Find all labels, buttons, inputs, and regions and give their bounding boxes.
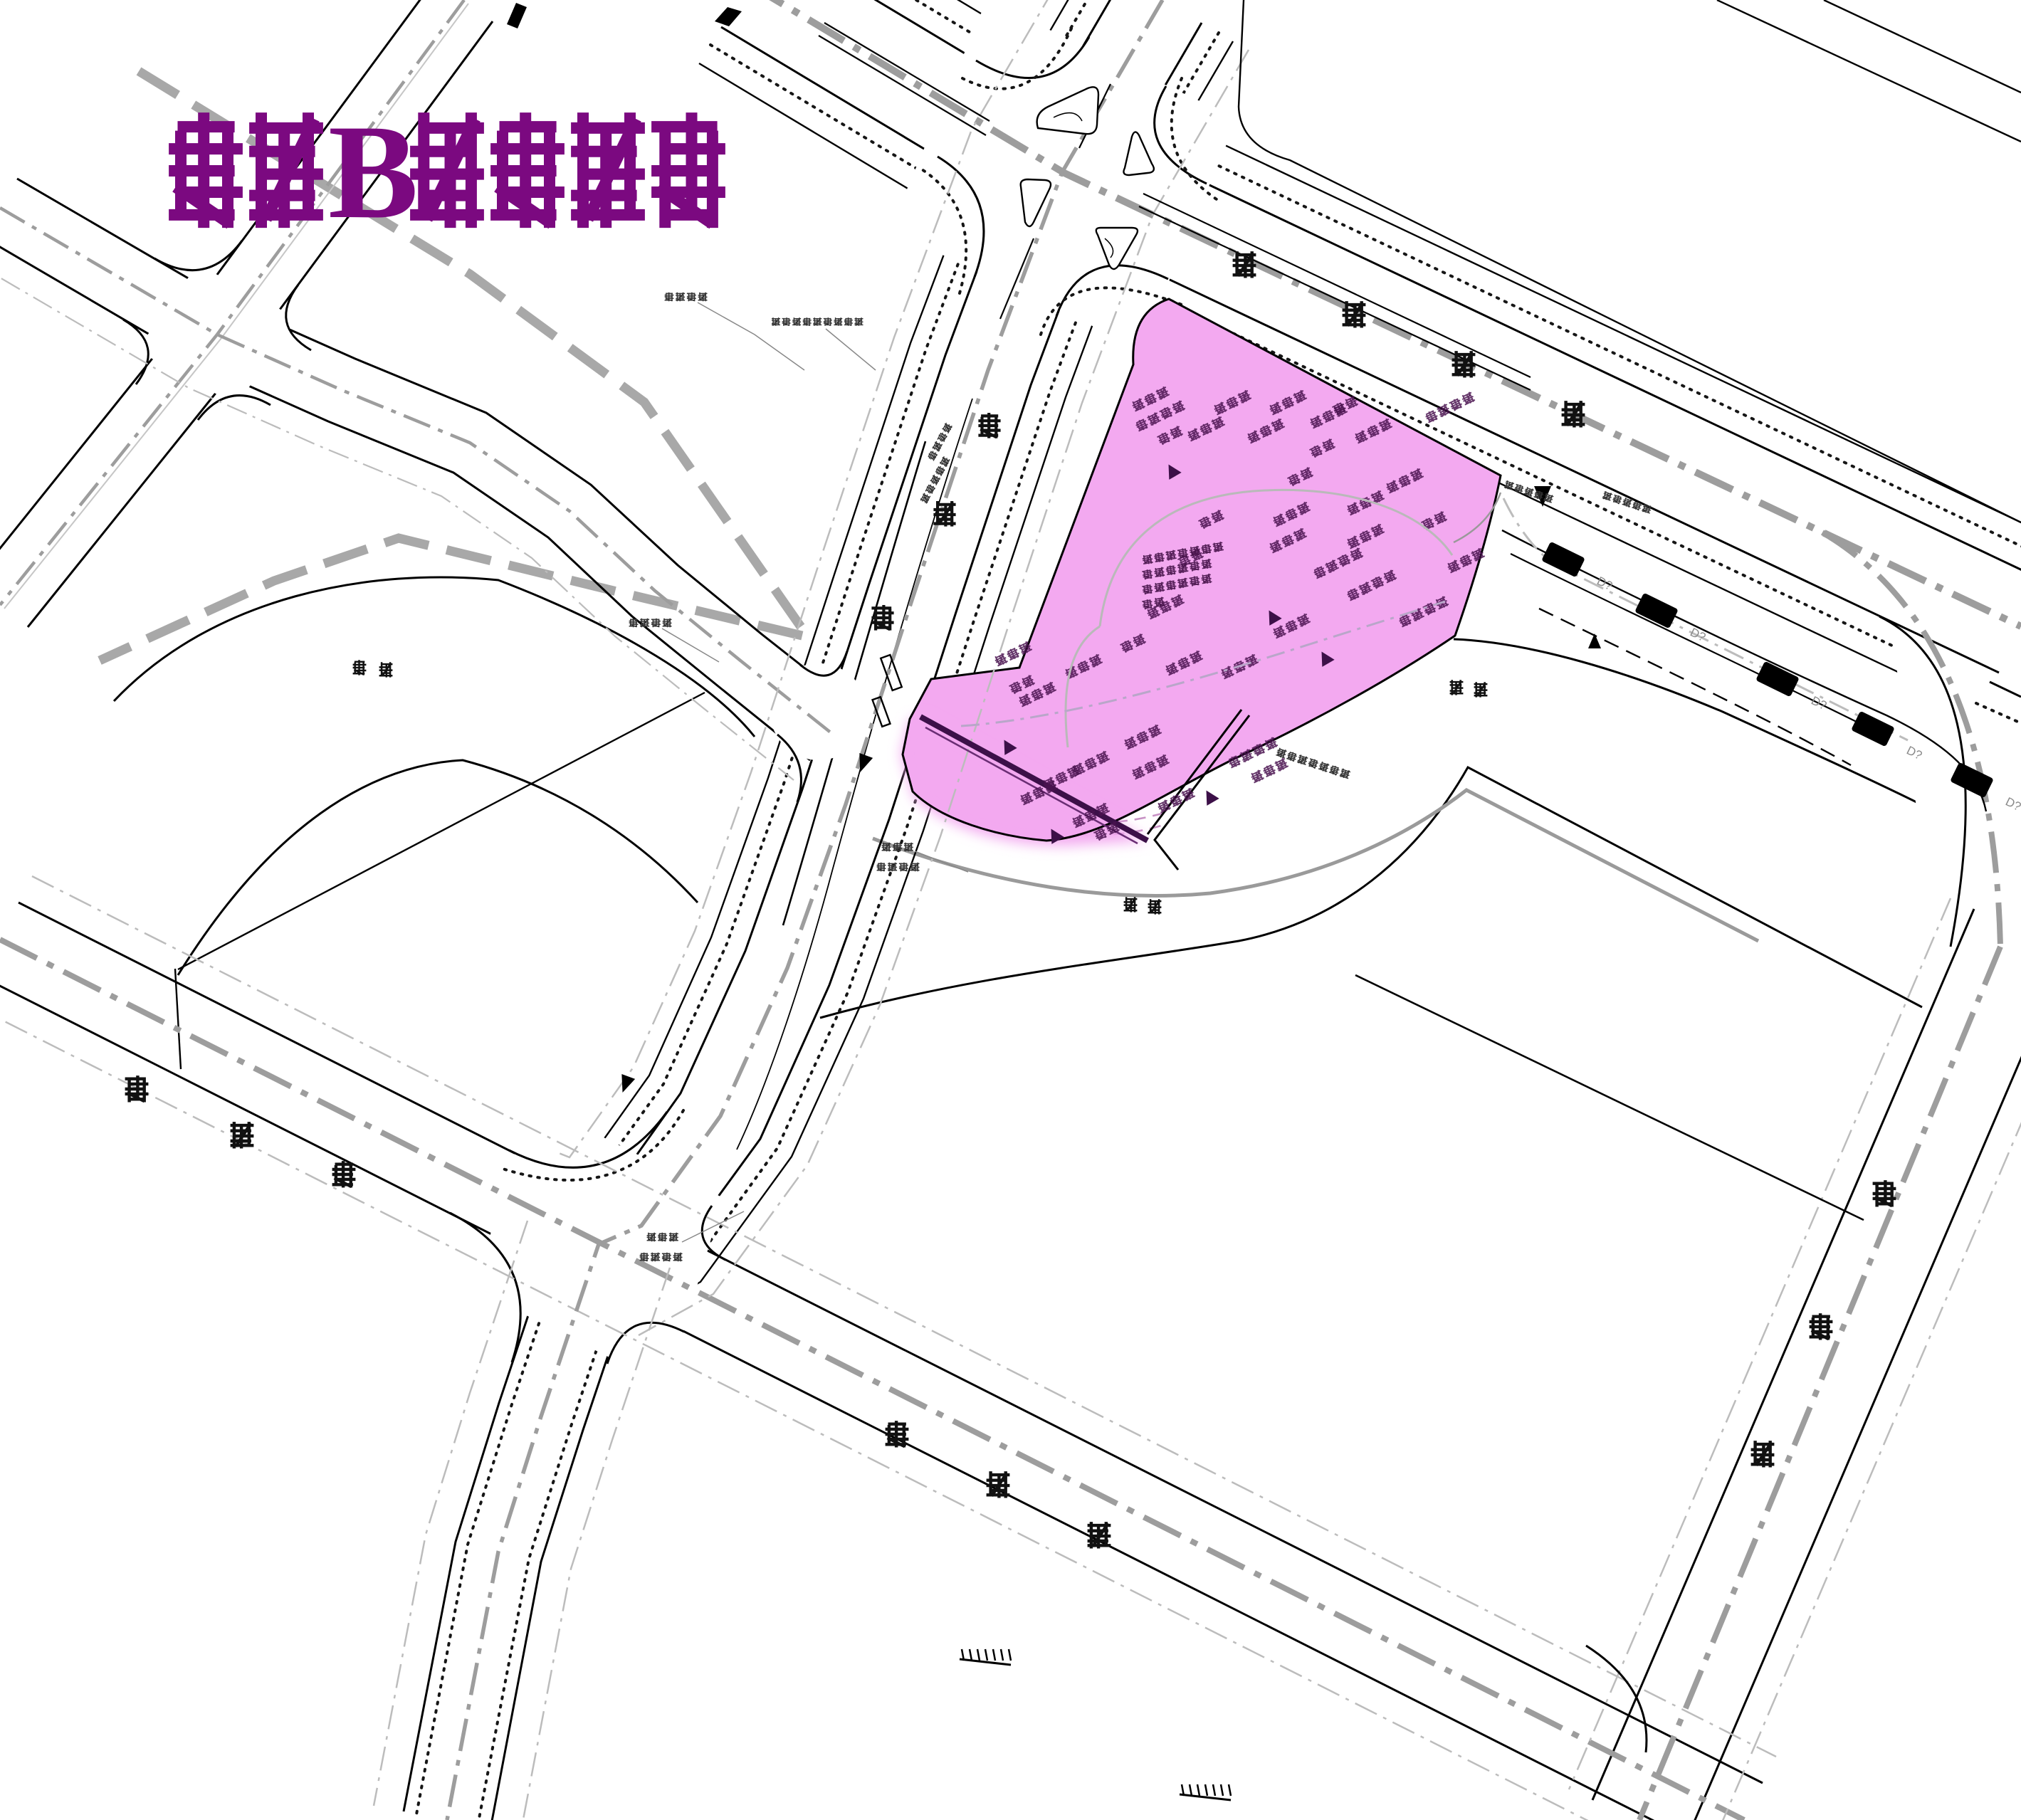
svg-text:B: B (328, 98, 419, 247)
